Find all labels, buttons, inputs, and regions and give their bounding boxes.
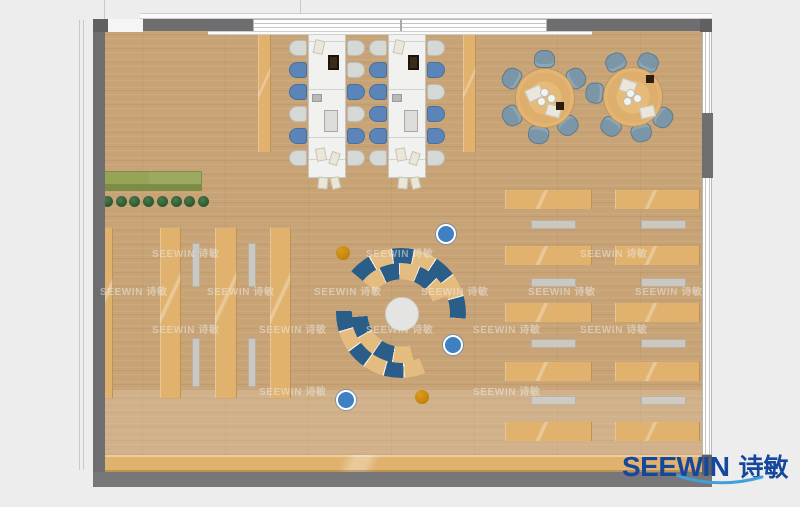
stool-blue — [336, 390, 356, 410]
watermark: SEEWIN 诗敏 — [152, 245, 220, 260]
planter-box — [97, 171, 202, 185]
floor-plan-canvas: SEEWIN 诗敏SEEWIN 诗敏SEEWIN 诗敏SEEWIN 诗敏SEEW… — [0, 0, 800, 507]
chair — [289, 84, 307, 100]
watermark: SEEWIN 诗敏 — [473, 383, 541, 398]
chair — [289, 128, 307, 144]
table-item-cup — [623, 97, 632, 106]
watermark: SEEWIN 诗敏 — [100, 283, 168, 298]
chair — [347, 40, 365, 56]
door-opening-top-left — [108, 19, 143, 32]
table-segment-line — [309, 137, 345, 138]
table-item-cup — [547, 94, 556, 103]
chair — [427, 106, 445, 122]
watermark: SEEWIN 诗敏 — [152, 321, 220, 336]
chair — [369, 84, 387, 100]
watermark: SEEWIN 诗敏 — [421, 283, 489, 298]
plant — [157, 196, 168, 207]
watermark: SEEWIN 诗敏 — [473, 321, 541, 336]
table-segment-line — [389, 89, 425, 90]
desk-bench — [531, 220, 576, 229]
stool-blue — [436, 224, 456, 244]
chair — [347, 84, 365, 100]
watermark: SEEWIN 诗敏 — [580, 321, 648, 336]
chair — [369, 40, 387, 56]
desk-item-paper — [408, 151, 421, 166]
wall-corner-top-left — [93, 19, 108, 32]
bookshelf-strip — [270, 228, 291, 398]
desk-item-tablet — [392, 94, 402, 102]
table-item-cup — [537, 97, 546, 106]
exterior-line-top-left — [104, 0, 105, 20]
desk-row — [505, 422, 592, 441]
study-table — [388, 33, 426, 178]
chair — [369, 150, 387, 166]
desk-item-paper — [328, 151, 341, 166]
chair — [427, 40, 445, 56]
chair — [369, 62, 387, 78]
desk-bench — [641, 339, 686, 348]
desk-item-paper — [397, 177, 408, 190]
chair — [347, 150, 365, 166]
desk-bench — [531, 339, 576, 348]
watermark: SEEWIN 诗敏 — [635, 283, 703, 298]
watermark: SEEWIN 诗敏 — [366, 321, 434, 336]
table-segment-line — [389, 137, 425, 138]
plant — [171, 196, 182, 207]
reading-bench — [248, 243, 256, 287]
chair — [369, 128, 387, 144]
desk-item-paper — [313, 39, 326, 55]
watermark: SEEWIN 诗敏 — [314, 283, 382, 298]
watermark: SEEWIN 诗敏 — [528, 283, 596, 298]
reading-bench — [248, 338, 256, 387]
desk-item-monitor — [404, 110, 418, 132]
wall-right-segment — [702, 113, 713, 178]
chair — [289, 62, 307, 78]
exterior-line-left-inner — [83, 20, 84, 470]
logo-swoosh-icon — [674, 474, 766, 487]
chair — [289, 106, 307, 122]
desk-item-laptop — [408, 55, 419, 70]
desk-row — [505, 362, 592, 381]
desk-row — [505, 303, 592, 322]
plant — [116, 196, 127, 207]
window-sill-under — [208, 31, 592, 35]
table-item-laptop — [646, 75, 654, 83]
side-shelf-strip — [258, 34, 271, 152]
window-mullion — [400, 20, 402, 31]
watermark: SEEWIN 诗敏 — [580, 245, 648, 260]
desk-row — [615, 362, 700, 381]
desk-row — [615, 422, 700, 441]
chair — [369, 106, 387, 122]
table-item-cup — [633, 94, 642, 103]
desk-item-monitor — [324, 110, 338, 132]
study-table — [308, 33, 346, 178]
chair — [427, 150, 445, 166]
stool-orange — [336, 246, 350, 260]
chair — [347, 62, 365, 78]
wall-left — [93, 20, 105, 487]
chair — [427, 128, 445, 144]
table-segment-line — [309, 89, 345, 90]
desk-item-paper — [315, 147, 327, 162]
round-table-chair — [584, 81, 604, 103]
wall-top-segment-right — [547, 19, 703, 31]
desk-bench — [641, 220, 686, 229]
plant — [198, 196, 209, 207]
desk-item-paper — [395, 147, 407, 162]
chair — [347, 128, 365, 144]
seewin-logo: SEEWIN 诗敏 — [622, 448, 788, 484]
bottom-counter — [103, 455, 700, 472]
planter-edge — [97, 185, 202, 191]
side-shelf-strip — [463, 34, 476, 152]
desk-row — [505, 190, 592, 209]
chair — [347, 106, 365, 122]
desk-row — [615, 303, 700, 322]
chair — [289, 150, 307, 166]
desk-item-paper — [393, 39, 406, 55]
watermark: SEEWIN 诗敏 — [366, 245, 434, 260]
chair — [289, 40, 307, 56]
wall-corner-top-right — [700, 19, 712, 32]
round-table-chair — [534, 50, 555, 68]
watermark: SEEWIN 诗敏 — [207, 283, 275, 298]
watermark: SEEWIN 诗敏 — [259, 383, 327, 398]
window-right — [702, 31, 712, 455]
desk-row — [615, 190, 700, 209]
chair — [427, 62, 445, 78]
wall-top-segment-left — [143, 19, 253, 31]
exterior-line-left-outer — [79, 20, 80, 470]
stool-blue — [443, 335, 463, 355]
watermark: SEEWIN 诗敏 — [259, 321, 327, 336]
table-item-laptop — [556, 102, 564, 110]
desk-bench — [641, 396, 686, 405]
desk-item-tablet — [312, 94, 322, 102]
desk-item-laptop — [328, 55, 339, 70]
desk-row — [505, 246, 592, 265]
stool-orange — [415, 390, 429, 404]
desk-item-paper — [317, 177, 328, 190]
chair — [427, 84, 445, 100]
wall-bottom — [93, 472, 712, 487]
reading-bench — [192, 338, 200, 387]
